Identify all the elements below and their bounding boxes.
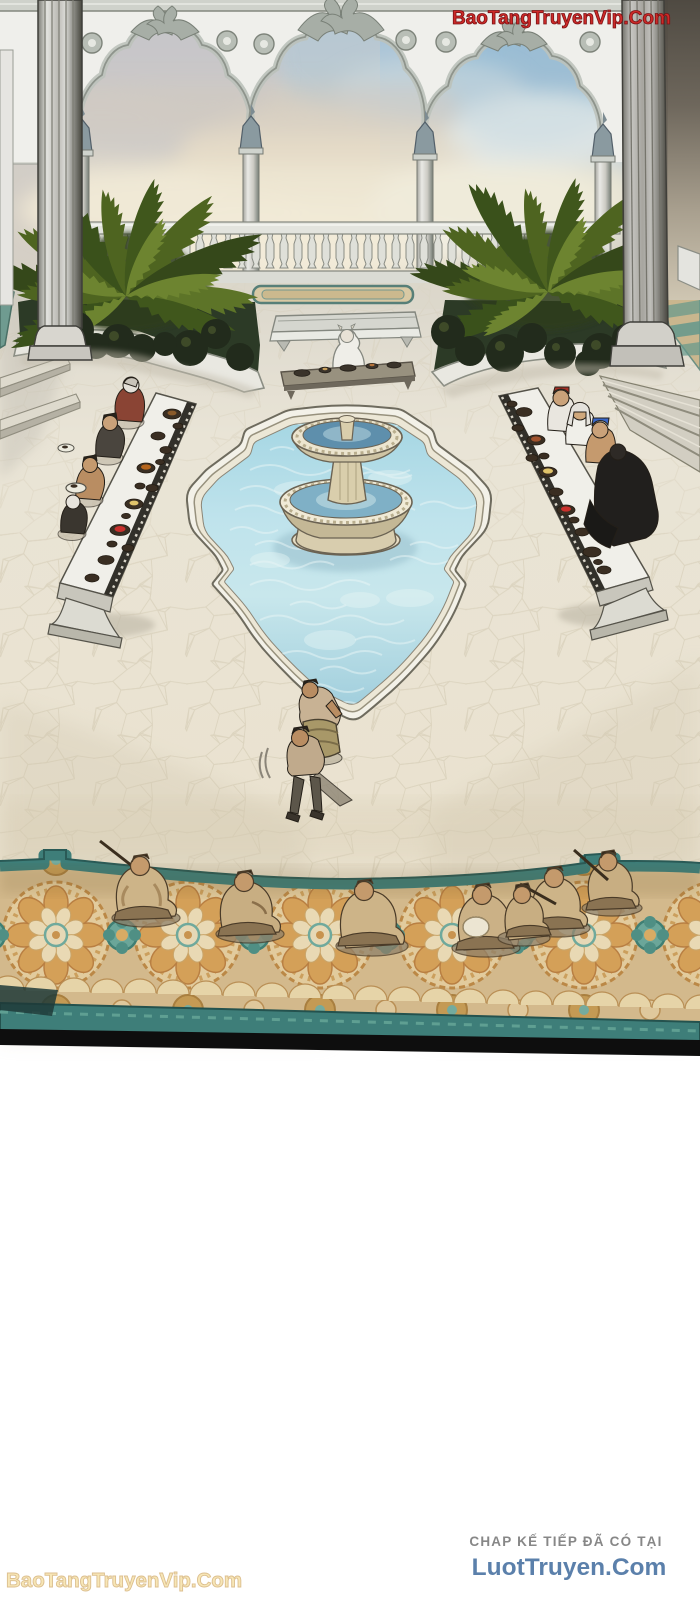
svg-text:BaoTangTruyenVip.Com: BaoTangTruyenVip.Com [452, 8, 671, 29]
svg-text:BaoTangTruyenVip.Com: BaoTangTruyenVip.Com [6, 1569, 242, 1592]
svg-text:CHAP KẾ TIẾP ĐÃ CÓ TẠI: CHAP KẾ TIẾP ĐÃ CÓ TẠI [469, 1534, 662, 1549]
svg-text:LuotTruyen.Com: LuotTruyen.Com [472, 1554, 667, 1581]
